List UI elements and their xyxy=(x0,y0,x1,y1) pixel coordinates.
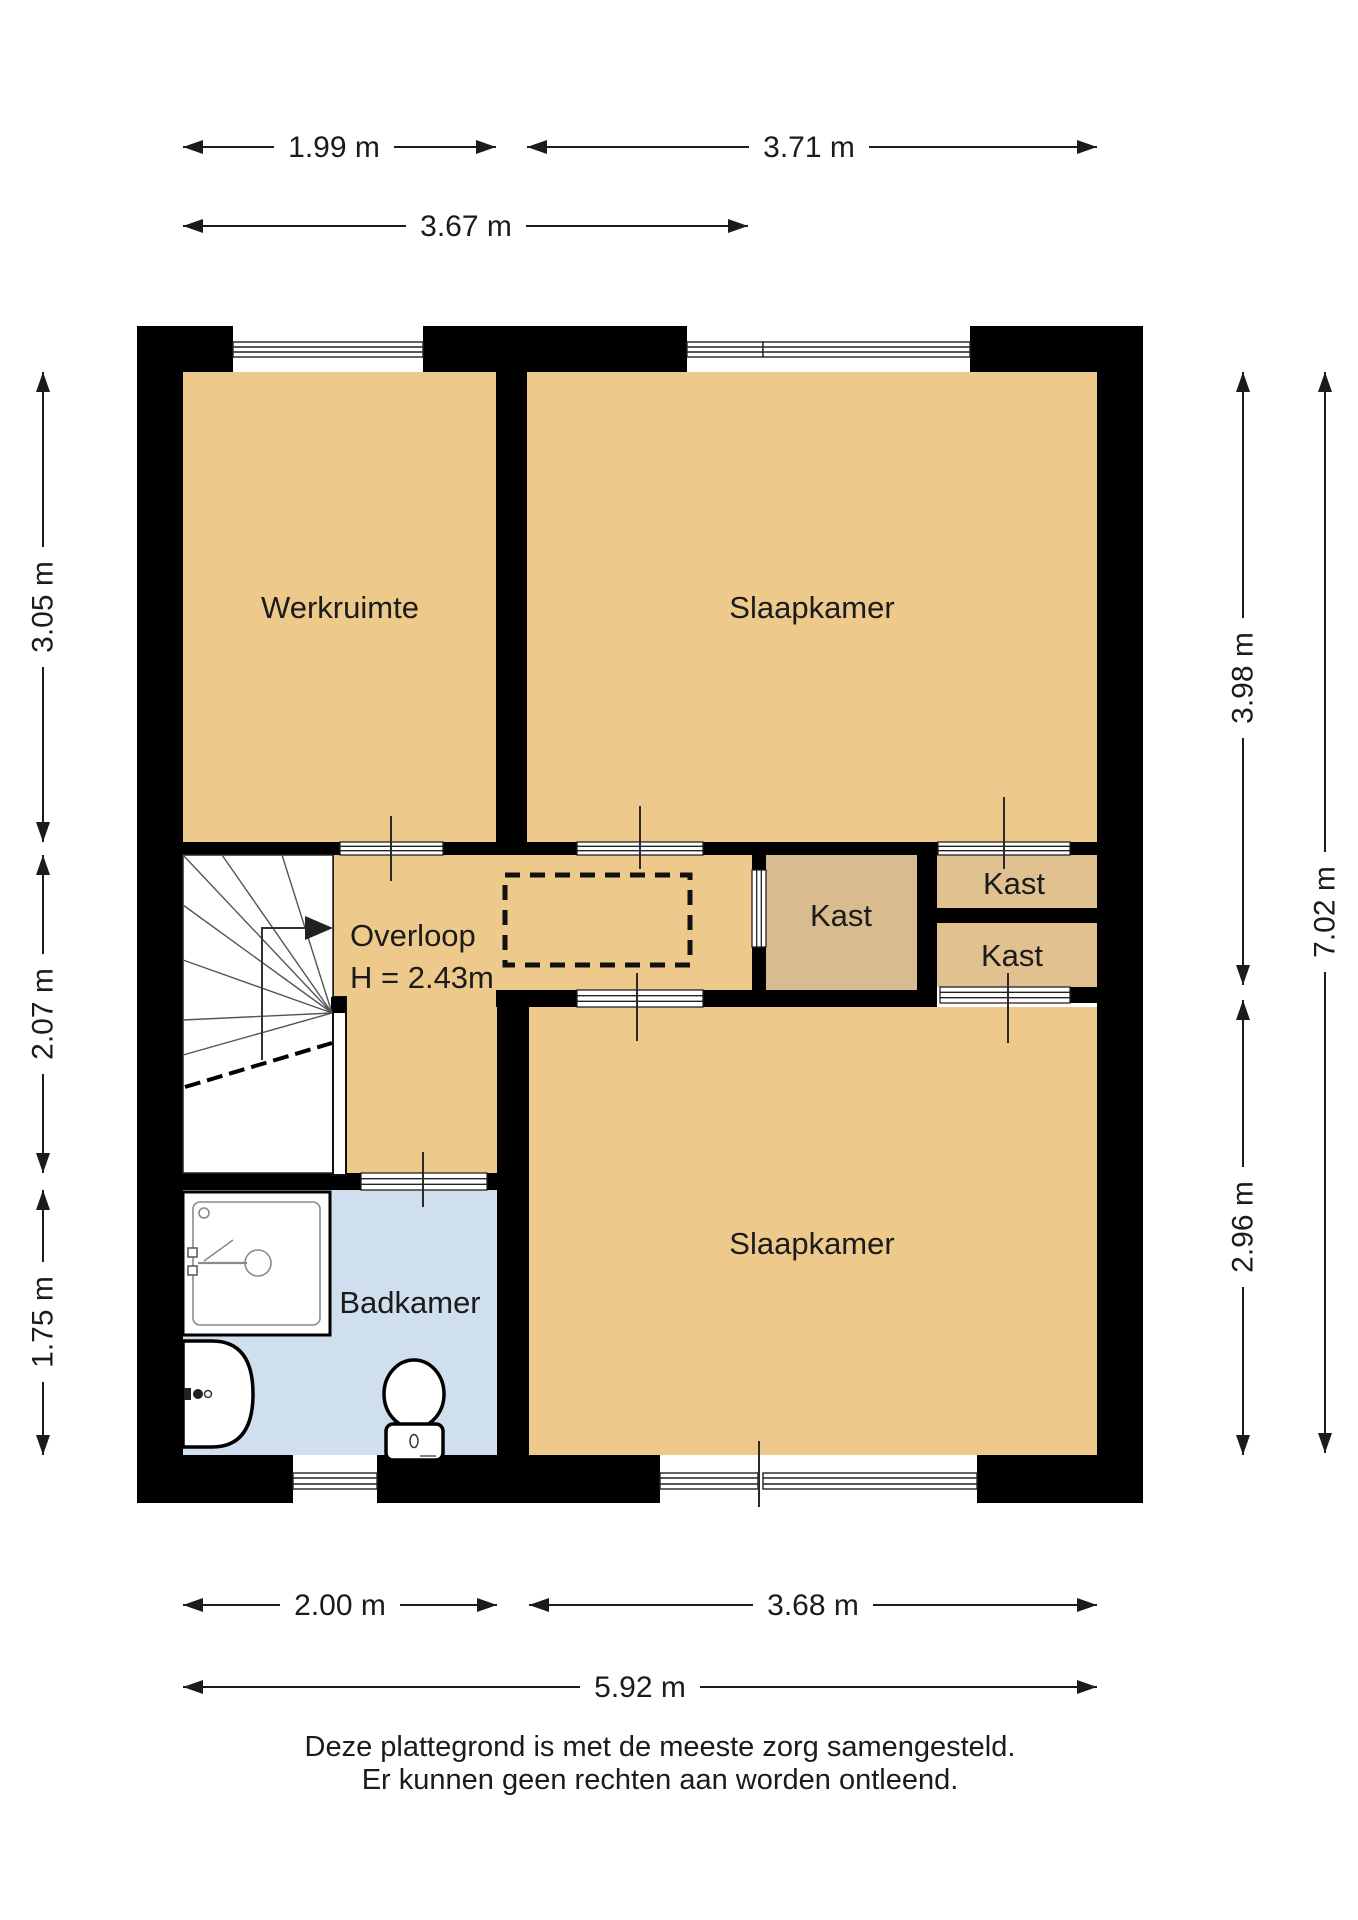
disclaimer: Deze plattegrond is met de meeste zorg s… xyxy=(305,1731,1016,1796)
dimension-top-1: 1.99 m xyxy=(183,128,496,166)
dimension-value: 2.96 m xyxy=(1227,1181,1260,1273)
window xyxy=(763,1455,977,1503)
stair-newel-stub xyxy=(331,997,346,1013)
stairs-icon xyxy=(183,855,346,1175)
dimension-bottom-1: 2.00 m xyxy=(183,1586,497,1624)
room-label-kast-mid: Kast xyxy=(810,898,872,933)
room-label-badkamer: Badkamer xyxy=(339,1285,480,1320)
disclaimer-line-1: Deze plattegrond is met de meeste zorg s… xyxy=(305,1731,1016,1763)
wall-kastmid-left-upper xyxy=(752,855,766,870)
wall-right xyxy=(1097,326,1143,1503)
disclaimer-line-2: Er kunnen geen rechten aan worden ontlee… xyxy=(362,1764,959,1796)
dimension-value: 2.00 m xyxy=(294,1589,386,1622)
wall-kastmid-left-lower xyxy=(752,947,766,992)
shower-icon xyxy=(183,1192,330,1335)
room-label-kast-right-top: Kast xyxy=(983,866,1045,901)
wall-top-b xyxy=(423,326,687,372)
dimension-value: 3.71 m xyxy=(763,131,855,164)
dimension-bottom-2: 3.68 m xyxy=(529,1586,1097,1624)
dimension-right-1: 3.98 m xyxy=(1224,372,1262,985)
door-opening xyxy=(577,990,703,1007)
dimension-right-3: 2.96 m xyxy=(1224,1000,1262,1455)
dimension-left-2: 2.07 m xyxy=(24,855,62,1173)
wall-bottom-c xyxy=(977,1455,1143,1503)
dimension-top-3: 3.67 m xyxy=(183,207,748,245)
room-label-overloop: Overloop xyxy=(350,918,476,953)
room-label-werkruimte: Werkruimte xyxy=(261,590,419,625)
wall-mid-d xyxy=(1070,842,1097,855)
floorplan-canvas: Werkruimte Slaapkamer Overloop H = 2.43m… xyxy=(0,0,1358,1920)
wall-badkamer-right xyxy=(497,990,529,1455)
dimension-value: 5.92 m xyxy=(594,1671,686,1704)
dimension-value: 3.67 m xyxy=(420,210,512,243)
room-label-slaapkamer-top: Slaapkamer xyxy=(729,590,894,625)
dimension-value: 2.07 m xyxy=(27,968,60,1060)
room-label-kast-right-bottom: Kast xyxy=(981,938,1043,973)
toilet-icon xyxy=(384,1360,444,1460)
door-opening xyxy=(940,987,1070,1003)
wall-kast-divider-horizontal xyxy=(937,908,1097,923)
window xyxy=(233,326,423,372)
window xyxy=(687,326,970,372)
wall-badkamer-top-b xyxy=(487,1173,497,1190)
dimension-value: 3.68 m xyxy=(767,1589,859,1622)
dimension-left-3: 1.75 m xyxy=(24,1190,62,1455)
dimension-value: 1.99 m xyxy=(288,131,380,164)
door-opening xyxy=(752,870,766,947)
dimension-value: 1.75 m xyxy=(27,1276,60,1368)
room-label-slaapkamer-bottom: Slaapkamer xyxy=(729,1226,894,1261)
dimension-bottom-3: 5.92 m xyxy=(183,1668,1097,1706)
dimension-value: 7.02 m xyxy=(1309,866,1342,958)
dimension-top-2: 3.71 m xyxy=(527,128,1097,166)
dimension-value: 3.05 m xyxy=(27,561,60,653)
wall-mid-a xyxy=(183,842,340,855)
wall-slaapkamer-bottom-top-b xyxy=(703,990,937,1007)
wall-top-c xyxy=(970,326,1143,372)
room-label-overloop-height: H = 2.43m xyxy=(350,960,494,995)
sink-icon xyxy=(183,1341,253,1447)
window xyxy=(660,1455,758,1503)
wall-bottom-b xyxy=(377,1455,660,1503)
dimension-right-2: 7.02 m xyxy=(1306,372,1344,1453)
window xyxy=(293,1455,377,1503)
wall-mid-c xyxy=(703,842,938,855)
wall-kast-bottom-stub xyxy=(1070,987,1097,1003)
dimension-left-1: 3.05 m xyxy=(24,372,62,842)
wall-kast-divider-vertical xyxy=(917,842,937,1007)
wall-bottom-a xyxy=(137,1455,293,1503)
wall-partition-top xyxy=(496,372,527,855)
dimension-value: 3.98 m xyxy=(1227,632,1260,724)
wall-left xyxy=(137,326,183,1503)
wall-top-a xyxy=(137,326,233,372)
stair-side-wall xyxy=(333,997,346,1175)
